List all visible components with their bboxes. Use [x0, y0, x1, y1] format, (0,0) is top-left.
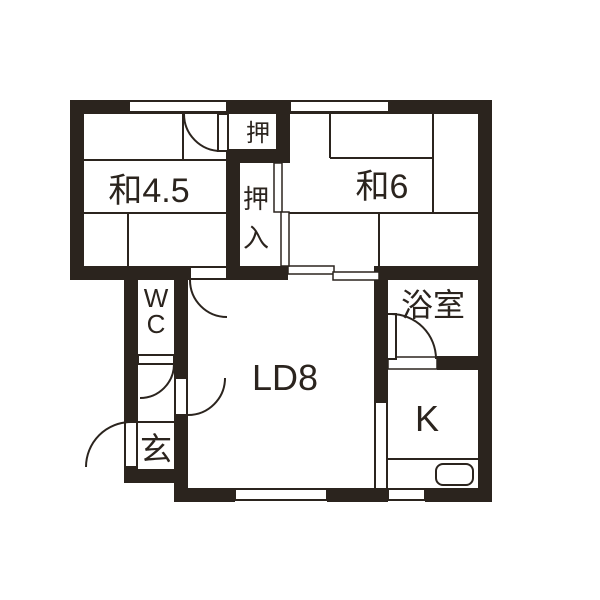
room-label-entrance: 玄 [140, 431, 172, 467]
room-label-living-dining: LD8 [252, 357, 318, 398]
room-label-closet-small: 押 [246, 120, 270, 147]
door-arc-hall-ld [188, 378, 225, 415]
kitchen-sink [436, 464, 473, 485]
wall-closet-right [276, 100, 290, 163]
wall-bottom-center [327, 488, 388, 502]
room-label-japanese-room-6: 和6 [356, 168, 409, 206]
room-label-japanese-room-4-5: 和4.5 [108, 172, 189, 210]
window-bottom-kitchen [388, 489, 425, 500]
floor-plan-drawing: 和4.5 和6 押 押 入 W C LD8 浴室 K 玄 [0, 0, 600, 600]
room-label-toilet-line2: C [147, 309, 166, 339]
window-top-wa6 [290, 101, 389, 112]
door-leaf-bath [387, 314, 396, 359]
window-top-wa45 [129, 101, 227, 112]
room-label-bathroom: 浴室 [401, 287, 465, 323]
wall-ld-kitchen [374, 266, 388, 403]
wall-left-upper [70, 100, 84, 280]
wall-left-lower [124, 280, 138, 422]
fusuma-oshiire-panel [281, 212, 289, 266]
room-label-closet-large-line2: 入 [243, 223, 269, 253]
wall-bath-kitchen-divider [437, 356, 478, 370]
door-arc-wa45-ld [190, 280, 227, 317]
floor-plan-page: 和4.5 和6 押 押 入 W C LD8 浴室 K 玄 [0, 0, 600, 600]
wall-hall-column-lower [174, 415, 188, 469]
wall-wa45-right [226, 151, 240, 280]
room-label-kitchen: K [415, 398, 439, 439]
wall-mid-band-left [70, 266, 190, 280]
door-leaf-wc [138, 355, 174, 364]
sliding-door-wa6-ld-panel [288, 266, 334, 274]
wall-right [478, 100, 492, 502]
wall-bottom-right [425, 488, 492, 502]
fusuma-oshiire-panel [274, 163, 282, 212]
room-label-closet-large-line1: 押 [243, 184, 269, 214]
door-leaf-wa45-ld [190, 267, 227, 279]
wall-mid-band-right [377, 266, 492, 280]
door-leaf-hall-ld [175, 378, 187, 415]
sliding-door-wa6-ld-panel [333, 272, 379, 280]
door-leaf-entrance [125, 422, 137, 467]
wall-bottom-left [174, 488, 235, 502]
door-arc-closet [184, 114, 221, 151]
door-leaf-closet [218, 114, 228, 151]
window-bottom-ld [235, 489, 327, 500]
wall-hall-column-upper [174, 280, 188, 378]
door-arc-wc [140, 364, 174, 398]
